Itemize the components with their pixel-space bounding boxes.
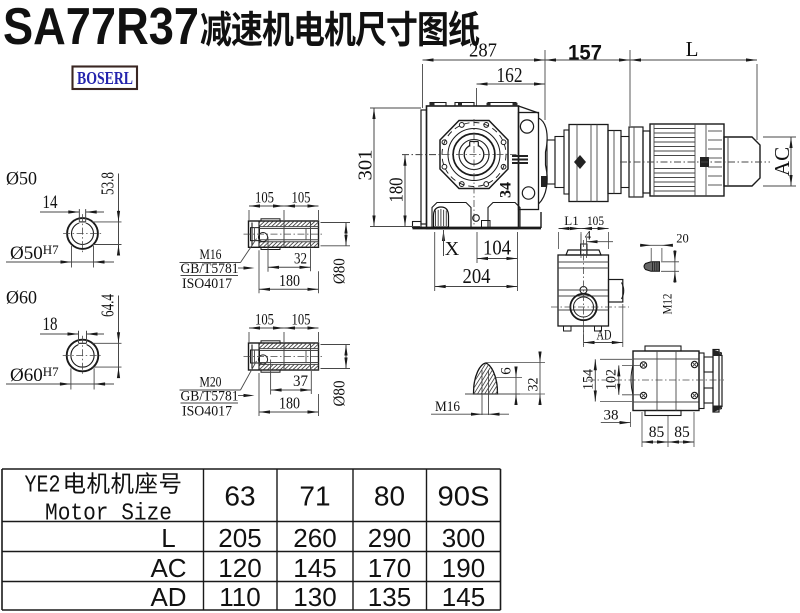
svg-text:154: 154 bbox=[581, 368, 597, 390]
svg-text:162: 162 bbox=[497, 63, 523, 87]
svg-text:180: 180 bbox=[279, 394, 300, 413]
svg-text:L: L bbox=[686, 37, 699, 61]
svg-text:105: 105 bbox=[587, 213, 604, 228]
svg-text:190: 190 bbox=[442, 553, 485, 583]
svg-text:M16: M16 bbox=[435, 399, 460, 415]
svg-text:102: 102 bbox=[604, 369, 620, 390]
svg-text:287: 287 bbox=[469, 40, 497, 62]
svg-text:130: 130 bbox=[293, 582, 336, 612]
svg-text:135: 135 bbox=[368, 582, 411, 612]
svg-text:32: 32 bbox=[294, 250, 307, 267]
svg-text:X: X bbox=[445, 238, 460, 260]
svg-text:90S: 90S bbox=[438, 481, 490, 512]
svg-text:37: 37 bbox=[293, 373, 308, 390]
svg-text:105: 105 bbox=[255, 190, 274, 207]
svg-text:AD: AD bbox=[597, 328, 612, 344]
svg-text:300: 300 bbox=[442, 523, 485, 553]
svg-text:Ø60: Ø60 bbox=[6, 288, 37, 309]
svg-text:AC: AC bbox=[150, 553, 186, 583]
svg-text:204: 204 bbox=[463, 264, 491, 288]
svg-text:180: 180 bbox=[386, 178, 408, 203]
svg-text:Ø80: Ø80 bbox=[330, 381, 349, 407]
svg-text:104: 104 bbox=[483, 236, 511, 260]
svg-text:BOSERL: BOSERL bbox=[77, 68, 133, 88]
svg-text:120: 120 bbox=[218, 553, 261, 583]
svg-text:M12: M12 bbox=[661, 294, 675, 315]
svg-text:53.8: 53.8 bbox=[98, 172, 118, 195]
svg-text:38: 38 bbox=[604, 408, 619, 424]
svg-text:64.4: 64.4 bbox=[98, 294, 118, 317]
svg-text:14: 14 bbox=[43, 192, 58, 213]
svg-text:110: 110 bbox=[219, 582, 260, 612]
svg-text:145: 145 bbox=[293, 553, 336, 583]
svg-text:105: 105 bbox=[255, 312, 274, 329]
svg-text:L: L bbox=[161, 523, 175, 553]
svg-text:YE2: YE2 bbox=[25, 473, 61, 500]
svg-text:ISO4017: ISO4017 bbox=[182, 276, 232, 292]
svg-text:32: 32 bbox=[526, 378, 542, 392]
svg-text:290: 290 bbox=[368, 523, 411, 553]
svg-text:80: 80 bbox=[374, 481, 405, 512]
svg-text:Motor Size: Motor Size bbox=[45, 501, 172, 528]
svg-text:SA77R37: SA77R37 bbox=[3, 0, 199, 56]
svg-text:157: 157 bbox=[568, 42, 602, 65]
svg-text:Ø50: Ø50 bbox=[6, 169, 37, 190]
svg-text:AD: AD bbox=[150, 582, 186, 612]
svg-text:105: 105 bbox=[292, 312, 311, 329]
svg-text:63: 63 bbox=[224, 481, 255, 512]
svg-text:180: 180 bbox=[279, 271, 300, 290]
svg-text:260: 260 bbox=[293, 523, 336, 553]
svg-text:Ø80: Ø80 bbox=[330, 258, 349, 284]
svg-text:6: 6 bbox=[499, 367, 515, 375]
svg-text:205: 205 bbox=[218, 523, 261, 553]
svg-text:4: 4 bbox=[585, 229, 592, 243]
svg-text:71: 71 bbox=[299, 481, 330, 512]
svg-text:170: 170 bbox=[368, 553, 411, 583]
svg-text:AC: AC bbox=[770, 147, 794, 176]
svg-text:105: 105 bbox=[292, 190, 311, 207]
svg-text:L1: L1 bbox=[564, 213, 578, 228]
svg-text:18: 18 bbox=[43, 314, 58, 335]
svg-text:20: 20 bbox=[676, 232, 689, 246]
svg-text:85: 85 bbox=[649, 424, 665, 441]
svg-text:GB/T5781: GB/T5781 bbox=[181, 261, 239, 277]
svg-text:301: 301 bbox=[355, 150, 377, 181]
svg-text:GB/T5781: GB/T5781 bbox=[181, 389, 239, 405]
svg-text:85: 85 bbox=[674, 424, 690, 441]
svg-text:34: 34 bbox=[498, 182, 515, 198]
svg-text:145: 145 bbox=[442, 582, 485, 612]
svg-text:ISO4017: ISO4017 bbox=[182, 404, 232, 420]
